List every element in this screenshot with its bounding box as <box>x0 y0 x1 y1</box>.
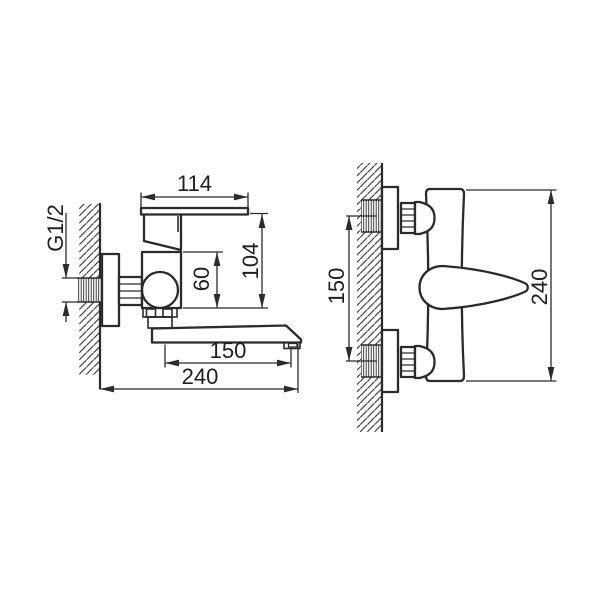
technical-drawing-canvas: 114 104 60 G1/2 150 <box>0 0 603 603</box>
dim-60: 60 <box>183 252 223 308</box>
technical-drawing: 114 104 60 G1/2 150 <box>0 0 603 603</box>
dim-label-114: 114 <box>177 171 212 196</box>
dim-label-240-front: 240 <box>527 269 552 306</box>
connection-nut <box>119 277 142 305</box>
valve-circle <box>142 272 178 308</box>
dim-label-60: 60 <box>189 267 214 291</box>
handle-lever-front <box>420 266 528 309</box>
side-view: 114 104 60 G1/2 150 <box>43 171 301 393</box>
front-view: 150 240 <box>324 163 557 432</box>
spout-adapter <box>143 308 177 328</box>
dim-240-side: 240 <box>100 344 298 393</box>
wall-flange <box>102 254 119 326</box>
dim-label-g12: G1/2 <box>43 204 68 252</box>
dim-104: 104 <box>183 214 268 309</box>
thread-stub <box>77 278 102 302</box>
dim-label-150-side: 150 <box>210 338 247 363</box>
handle-lever <box>141 208 248 215</box>
dim-label-240-side: 240 <box>182 364 219 389</box>
handle-neck <box>144 214 181 250</box>
dim-114: 114 <box>141 171 248 207</box>
dim-g12: G1/2 <box>43 204 78 322</box>
dim-label-150-front: 150 <box>324 268 349 305</box>
dim-label-104: 104 <box>238 243 263 280</box>
